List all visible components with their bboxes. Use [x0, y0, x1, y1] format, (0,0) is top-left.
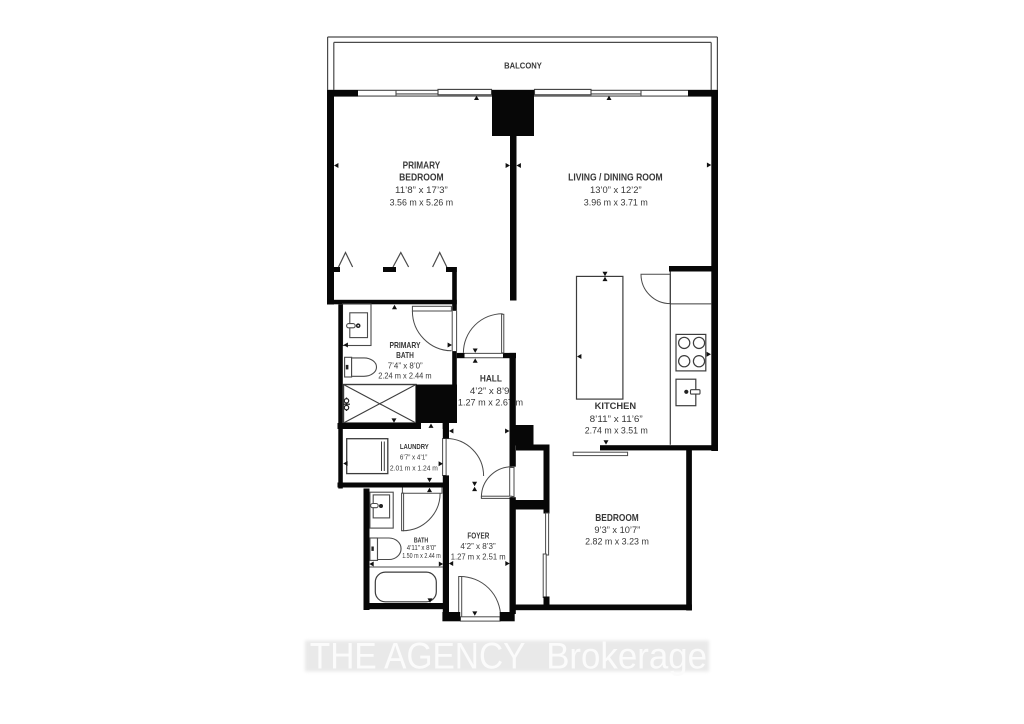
svg-text:LIVING / DINING ROOM: LIVING / DINING ROOM — [568, 173, 663, 184]
svg-text:1.50 m x 2.44 m: 1.50 m x 2.44 m — [402, 553, 441, 560]
svg-text:4’2” x 8’3”: 4’2” x 8’3” — [460, 542, 496, 551]
svg-text:3.56 m x 5.26 m: 3.56 m x 5.26 m — [390, 197, 454, 208]
svg-text:LAUNDRY: LAUNDRY — [400, 442, 429, 451]
svg-text:8’11” x 11’6”: 8’11” x 11’6” — [590, 414, 643, 424]
svg-text:BEDROOM: BEDROOM — [399, 173, 444, 184]
svg-text:7’4” x 8’0”: 7’4” x 8’0” — [388, 362, 423, 371]
svg-text:2.82 m x 3.23 m: 2.82 m x 3.23 m — [585, 537, 649, 548]
svg-text:BATH: BATH — [396, 351, 414, 360]
svg-text:11’8” x 17’3”: 11’8” x 17’3” — [395, 185, 448, 196]
svg-text:Brokerage: Brokerage — [546, 636, 707, 677]
svg-text:2.01 m x 1.24 m: 2.01 m x 1.24 m — [390, 463, 438, 472]
svg-text:2.74 m x 3.51 m: 2.74 m x 3.51 m — [585, 426, 648, 436]
svg-text:KITCHEN: KITCHEN — [595, 401, 637, 411]
svg-text:6’7” x 4’1”: 6’7” x 4’1” — [400, 453, 428, 462]
svg-text:13’0” x 12’2”: 13’0” x 12’2” — [590, 185, 642, 196]
svg-text:FOYER: FOYER — [467, 531, 489, 541]
svg-text:BATH: BATH — [414, 536, 428, 545]
svg-text:BALCONY: BALCONY — [504, 61, 542, 71]
svg-text:1.27 m x 2.51 m: 1.27 m x 2.51 m — [451, 553, 506, 562]
svg-text:9’3” x 10’7”: 9’3” x 10’7” — [594, 525, 640, 536]
svg-text:PRIMARY: PRIMARY — [389, 341, 421, 350]
svg-text:PRIMARY: PRIMARY — [403, 160, 441, 171]
svg-text:3.96 m x 3.71 m: 3.96 m x 3.71 m — [584, 197, 648, 208]
svg-text:HALL: HALL — [480, 373, 502, 383]
svg-text:BEDROOM: BEDROOM — [595, 513, 639, 524]
svg-text:4’2” x 8’9”: 4’2” x 8’9” — [470, 386, 513, 396]
svg-text:THE AGENCY: THE AGENCY — [310, 636, 526, 677]
svg-text:2.24 m x 2.44 m: 2.24 m x 2.44 m — [378, 371, 432, 380]
svg-text:4’11” x 8’0”: 4’11” x 8’0” — [407, 545, 437, 552]
